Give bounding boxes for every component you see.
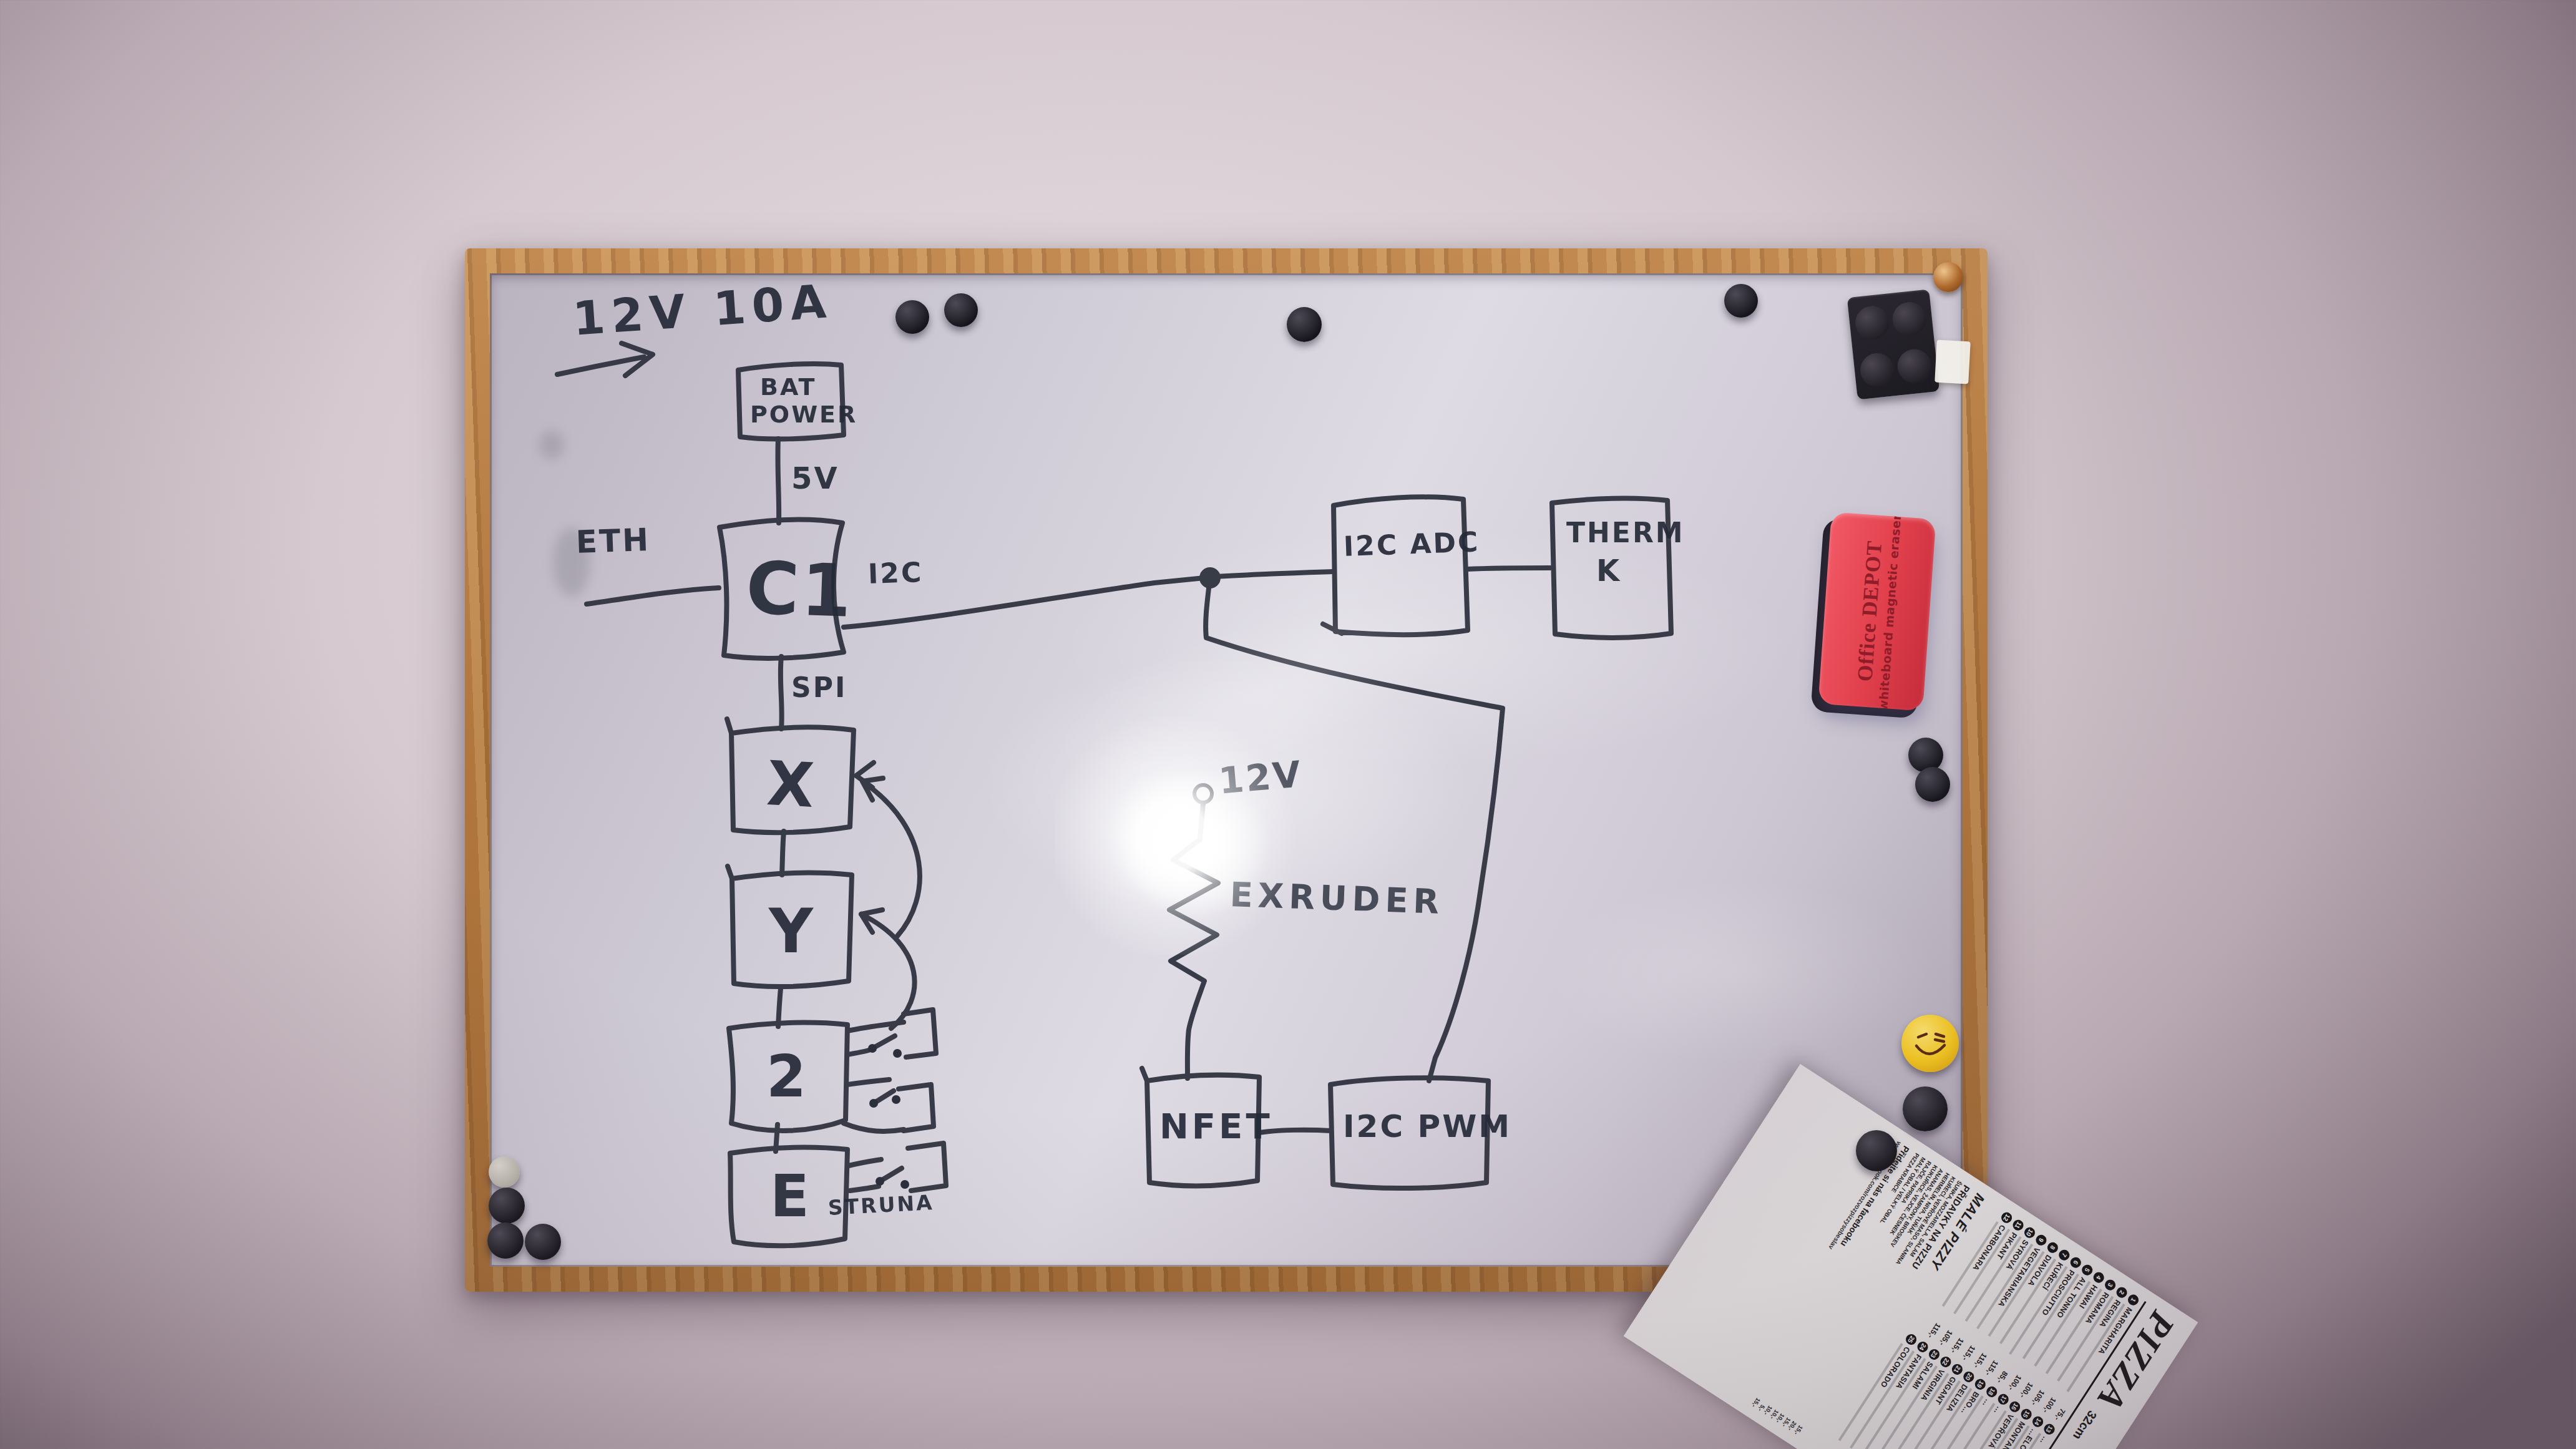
label-e: E [770,1163,811,1230]
wire-adc-therm [1468,568,1550,569]
label-z: 2 [766,1043,808,1110]
switch-dot [900,1180,909,1189]
label-i2c-adc: I2C ADC [1343,525,1480,562]
round-magnet [1903,1086,1948,1131]
menu-item-price: 75,- [2052,1407,2067,1422]
round-magnet [1287,307,1322,342]
switch-dot [869,1099,878,1108]
v12-node [1194,785,1212,803]
switch-dot [893,1049,902,1058]
round-magnet [944,293,978,327]
diagram-ink [0,0,2576,1449]
wire-spi [781,656,782,729]
label-12v-center: 12V [1217,753,1304,802]
smiley-magnet [1901,1015,1959,1072]
label-x: X [765,748,817,821]
round-magnet [489,1188,525,1224]
push-pin [1933,262,1963,292]
switch-dot [868,1044,877,1053]
label-therm-line1: THERM [1566,517,1685,549]
wire-eth [587,588,719,604]
label-bat-line2: POWER [750,401,857,428]
magnet-tray [1847,290,1939,400]
switch-dot [876,1177,884,1186]
label-y: Y [769,895,815,967]
smiley-smile [1916,1045,1944,1054]
i2c-adc-box [1323,497,1468,635]
z-switch-1 [847,1010,936,1057]
label-extruder: EXRUDER [1229,875,1445,922]
wire-x-y [782,831,784,875]
round-magnet-gray [489,1156,520,1188]
label-c1: C1 [744,545,854,633]
round-magnet [895,300,929,334]
supply-arrow [557,343,653,376]
menu-item-number: 1 [2126,1292,2141,1307]
label-eth: ETH [575,522,651,560]
whiteboard-eraser: Office DEPOT whiteboard magnetic eraser [1818,512,1936,711]
tray-magnet [1854,305,1891,341]
label-nfet: NFET [1159,1106,1273,1146]
wire-i2c-branch [1206,578,1503,1081]
smiley-left-eye [1918,1034,1926,1037]
label-i2c-pwm: I2C PWM [1343,1108,1511,1144]
smiley-face [1901,1015,1959,1072]
label-spi: SPI [791,671,847,703]
label-bat-line1: BAT [760,373,816,401]
tray-magnet [1858,351,1895,388]
label-therm-line2: K [1596,553,1621,588]
e-switch [849,1143,946,1191]
tape-piece [1934,340,1970,384]
heater-zigzag [1169,804,1218,1078]
tray-magnet [1896,348,1933,384]
wire-bat-c1 [778,439,779,523]
z-switch-2 [844,1080,934,1131]
tray-magnet [1891,300,1928,337]
round-magnet [1915,767,1950,802]
round-magnet [525,1224,561,1260]
menu-item-number: 13 [2042,1422,2057,1437]
label-5v: 5V [791,461,839,495]
switch-dot [892,1095,900,1104]
round-magnet [487,1222,524,1259]
smiley-right-eye [1935,1034,1944,1042]
label-i2c: I2C [867,556,924,590]
round-magnet [1724,284,1758,318]
menu-size: 32cm [2070,1408,2099,1442]
round-magnet [1856,1130,1897,1171]
